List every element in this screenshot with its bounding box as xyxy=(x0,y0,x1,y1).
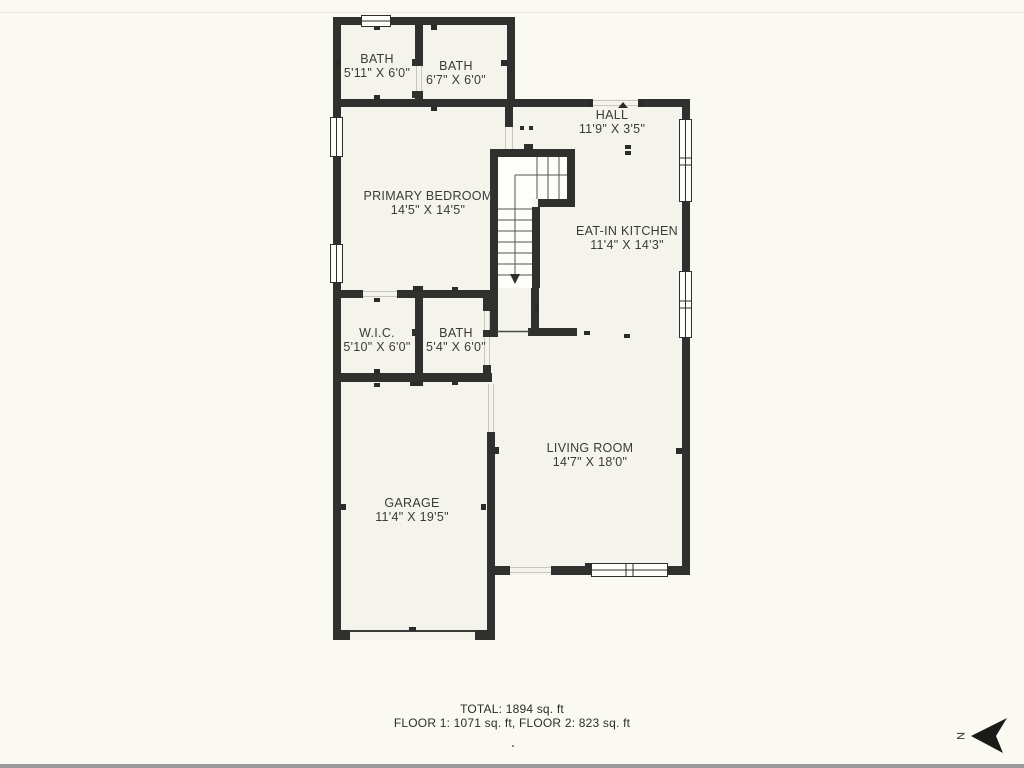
room-name: BATH xyxy=(426,326,486,340)
room-dims: 11'4" X 19'5" xyxy=(375,510,449,524)
room-name: LIVING ROOM xyxy=(547,441,634,455)
window-top-bath xyxy=(362,16,391,27)
room-name: EAT-IN KITCHEN xyxy=(576,224,678,238)
room-label-hall: HALL 11'9" X 3'5" xyxy=(579,108,645,136)
room-name: BATH xyxy=(426,59,486,73)
room-name: W.I.C. xyxy=(343,326,410,340)
room-label-wic: W.I.C. 5'10" X 6'0" xyxy=(343,326,410,354)
small-mark xyxy=(512,745,514,747)
room-label-living-room: LIVING ROOM 14'7" X 18'0" xyxy=(547,441,634,469)
room-dims: 14'5" X 14'5" xyxy=(363,203,492,217)
floor-areas: FLOOR 1: 1071 sq. ft, FLOOR 2: 823 sq. f… xyxy=(394,717,630,731)
window-living-room xyxy=(592,564,668,577)
room-dims: 11'9" X 3'5" xyxy=(579,122,645,136)
room-name: PRIMARY BEDROOM xyxy=(363,189,492,203)
window-kitchen-upper xyxy=(680,120,692,202)
window-kitchen-lower xyxy=(680,272,692,338)
room-dims: 5'11" X 6'0" xyxy=(344,66,410,80)
floorplan-canvas: N BATH 5'11" X 6'0" BATH 6'7" X 6'0" HAL… xyxy=(0,0,1024,768)
area-summary: TOTAL: 1894 sq. ft FLOOR 1: 1071 sq. ft,… xyxy=(394,703,630,730)
room-dims: 11'4" X 14'3" xyxy=(576,238,678,252)
window-bedroom-upper xyxy=(331,118,343,157)
window-bedroom-lower xyxy=(331,245,343,283)
room-name: GARAGE xyxy=(375,496,449,510)
room-dims: 14'7" X 18'0" xyxy=(547,455,634,469)
room-label-bath-middle: BATH 5'4" X 6'0" xyxy=(426,326,486,354)
floorplan-drawing: N xyxy=(0,0,1024,768)
room-dims: 5'4" X 6'0" xyxy=(426,340,486,354)
room-label-bath-upper-right: BATH 6'7" X 6'0" xyxy=(426,59,486,87)
room-label-primary-bedroom: PRIMARY BEDROOM 14'5" X 14'5" xyxy=(363,189,492,217)
north-label: N xyxy=(954,732,966,740)
room-label-eat-in-kitchen: EAT-IN KITCHEN 11'4" X 14'3" xyxy=(576,224,678,252)
room-dims: 6'7" X 6'0" xyxy=(426,73,486,87)
room-dims: 5'10" X 6'0" xyxy=(343,340,410,354)
north-arrow: N xyxy=(954,718,1007,753)
bottom-border xyxy=(0,764,1024,768)
room-name: HALL xyxy=(579,108,645,122)
total-area: TOTAL: 1894 sq. ft xyxy=(394,703,630,717)
room-label-garage: GARAGE 11'4" X 19'5" xyxy=(375,496,449,524)
north-arrow-icon xyxy=(971,718,1007,753)
room-name: BATH xyxy=(344,52,410,66)
room-label-bath-upper-left: BATH 5'11" X 6'0" xyxy=(344,52,410,80)
